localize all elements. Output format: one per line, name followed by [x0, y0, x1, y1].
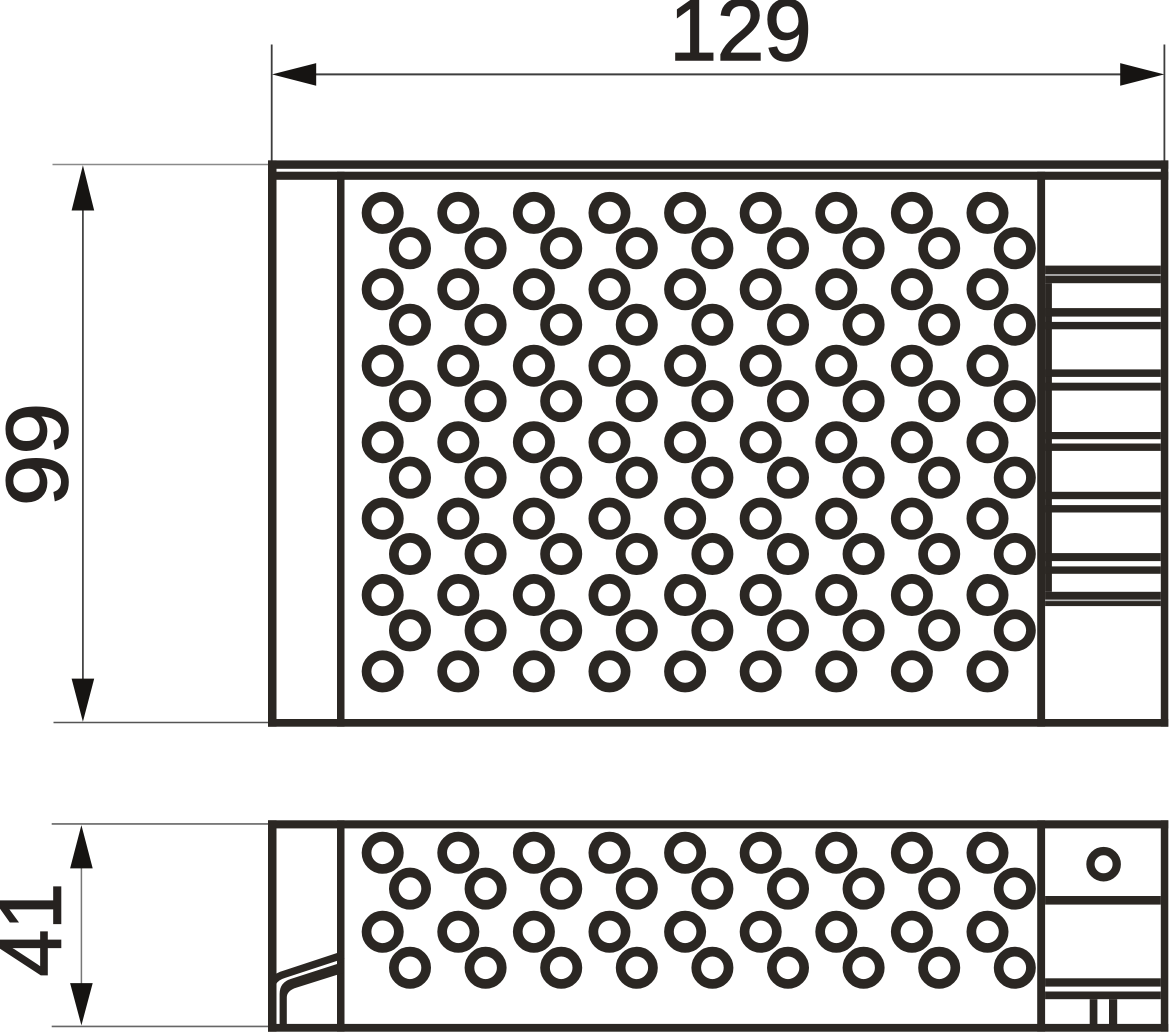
svg-text:129: 129 [670, 0, 812, 79]
svg-text:99: 99 [0, 403, 86, 506]
svg-text:41: 41 [0, 883, 80, 977]
